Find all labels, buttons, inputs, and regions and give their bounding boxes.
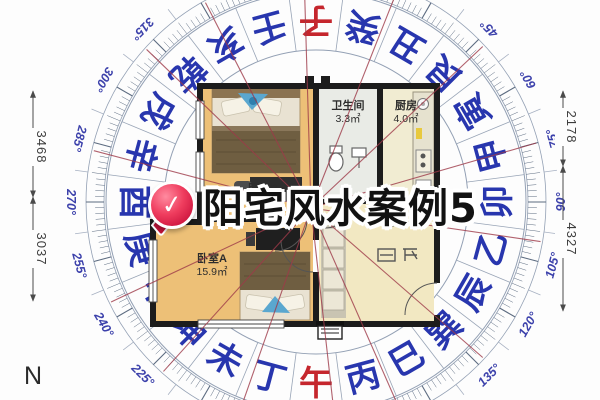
degree-label-90: 90° [554,192,568,212]
mountain-char-345: 壬 [248,3,291,49]
mountain-char-0: 子 [299,1,333,39]
dim-left-bottom: 3037 [34,233,49,266]
sofa-living-room [321,222,346,318]
degree-label-240: 240° [91,309,117,340]
mountain-char-180: 午 [299,365,333,400]
check-icon: ✓ [148,181,195,228]
degree-label-60: 60° [517,67,539,91]
ac-unit [316,321,344,339]
degree-label-30: 30° [426,0,450,1]
dim-right-top: 2178 [564,111,579,144]
mountain-char-195: 丁 [248,355,291,400]
mountain-char-90: 卯 [479,185,517,219]
degree-label-285: 285° [69,123,90,154]
page-title: 阳宅风水案例5 [203,176,478,234]
mountain-char-165: 丙 [342,355,385,400]
bathroom-label: 卫生间 [332,98,365,112]
degree-label-120: 120° [516,309,542,339]
mountain-char-285: 辛 [117,134,163,177]
mountain-char-75: 甲 [469,134,515,177]
mountain-char-15: 癸 [342,3,386,49]
dim-right-bottom: 4327 [564,223,579,256]
bedroom-a-label: 卧室A [197,251,227,265]
degree-label-270: 270° [64,188,78,216]
degree-label-315: 315° [128,15,157,44]
kitchen-label: 厨房 [395,98,417,112]
degree-label-45: 45° [477,16,502,41]
north-letter: N [24,362,42,390]
check-pin-icon: ✓ [148,181,196,229]
feng-shui-case-image: 子癸丑艮寅甲卯乙辰巽巳丙午丁未坤申庚酉辛戌乾亥壬30°45°60°75°90°1… [0,0,600,400]
degree-label-135: 135° [475,360,504,389]
degree-label-255: 255° [69,250,90,281]
dim-left-top: 3468 [34,131,49,164]
bedroom-a-area: 15.9㎡ [197,266,228,278]
title-overlay: ✓ 阳宅风水案例5 [148,176,478,234]
degree-label-300: 300° [91,65,117,95]
